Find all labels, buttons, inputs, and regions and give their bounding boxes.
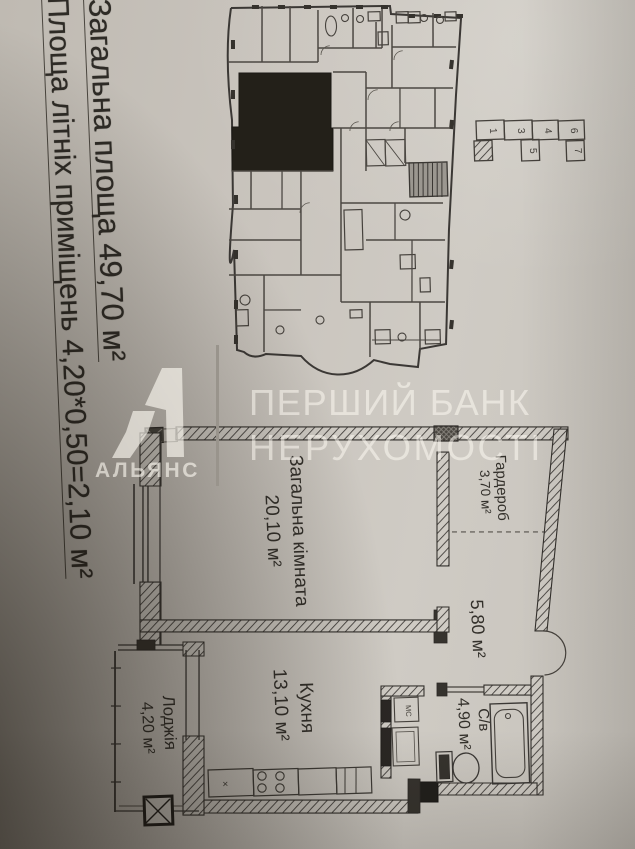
svg-text:5,80 м²: 5,80 м² bbox=[467, 599, 489, 658]
svg-text:20,10 м²: 20,10 м² bbox=[261, 494, 285, 567]
svg-text:Лоджія: Лоджія bbox=[159, 695, 180, 750]
svg-text:7: 7 bbox=[572, 148, 583, 155]
svg-text:3: 3 bbox=[515, 128, 526, 135]
svg-text:Загальна кімната: Загальна кімната bbox=[285, 455, 312, 608]
svg-text:13,10 м²: 13,10 м² bbox=[269, 668, 293, 741]
svg-text:4,20 м²: 4,20 м² bbox=[138, 702, 157, 755]
svg-text:3,70 м²: 3,70 м² bbox=[477, 470, 494, 515]
svg-text:4,90 м²: 4,90 м² bbox=[454, 698, 473, 751]
svg-text:5: 5 bbox=[527, 148, 538, 155]
svg-text:4: 4 bbox=[542, 128, 553, 135]
svg-text:С/в: С/в bbox=[475, 708, 493, 732]
svg-text:6: 6 bbox=[568, 128, 579, 135]
svg-text:1: 1 bbox=[487, 128, 498, 135]
svg-text:×: × bbox=[219, 781, 230, 787]
svg-text:Кухня: Кухня bbox=[295, 682, 318, 734]
svg-text:МС: МС bbox=[404, 705, 414, 718]
